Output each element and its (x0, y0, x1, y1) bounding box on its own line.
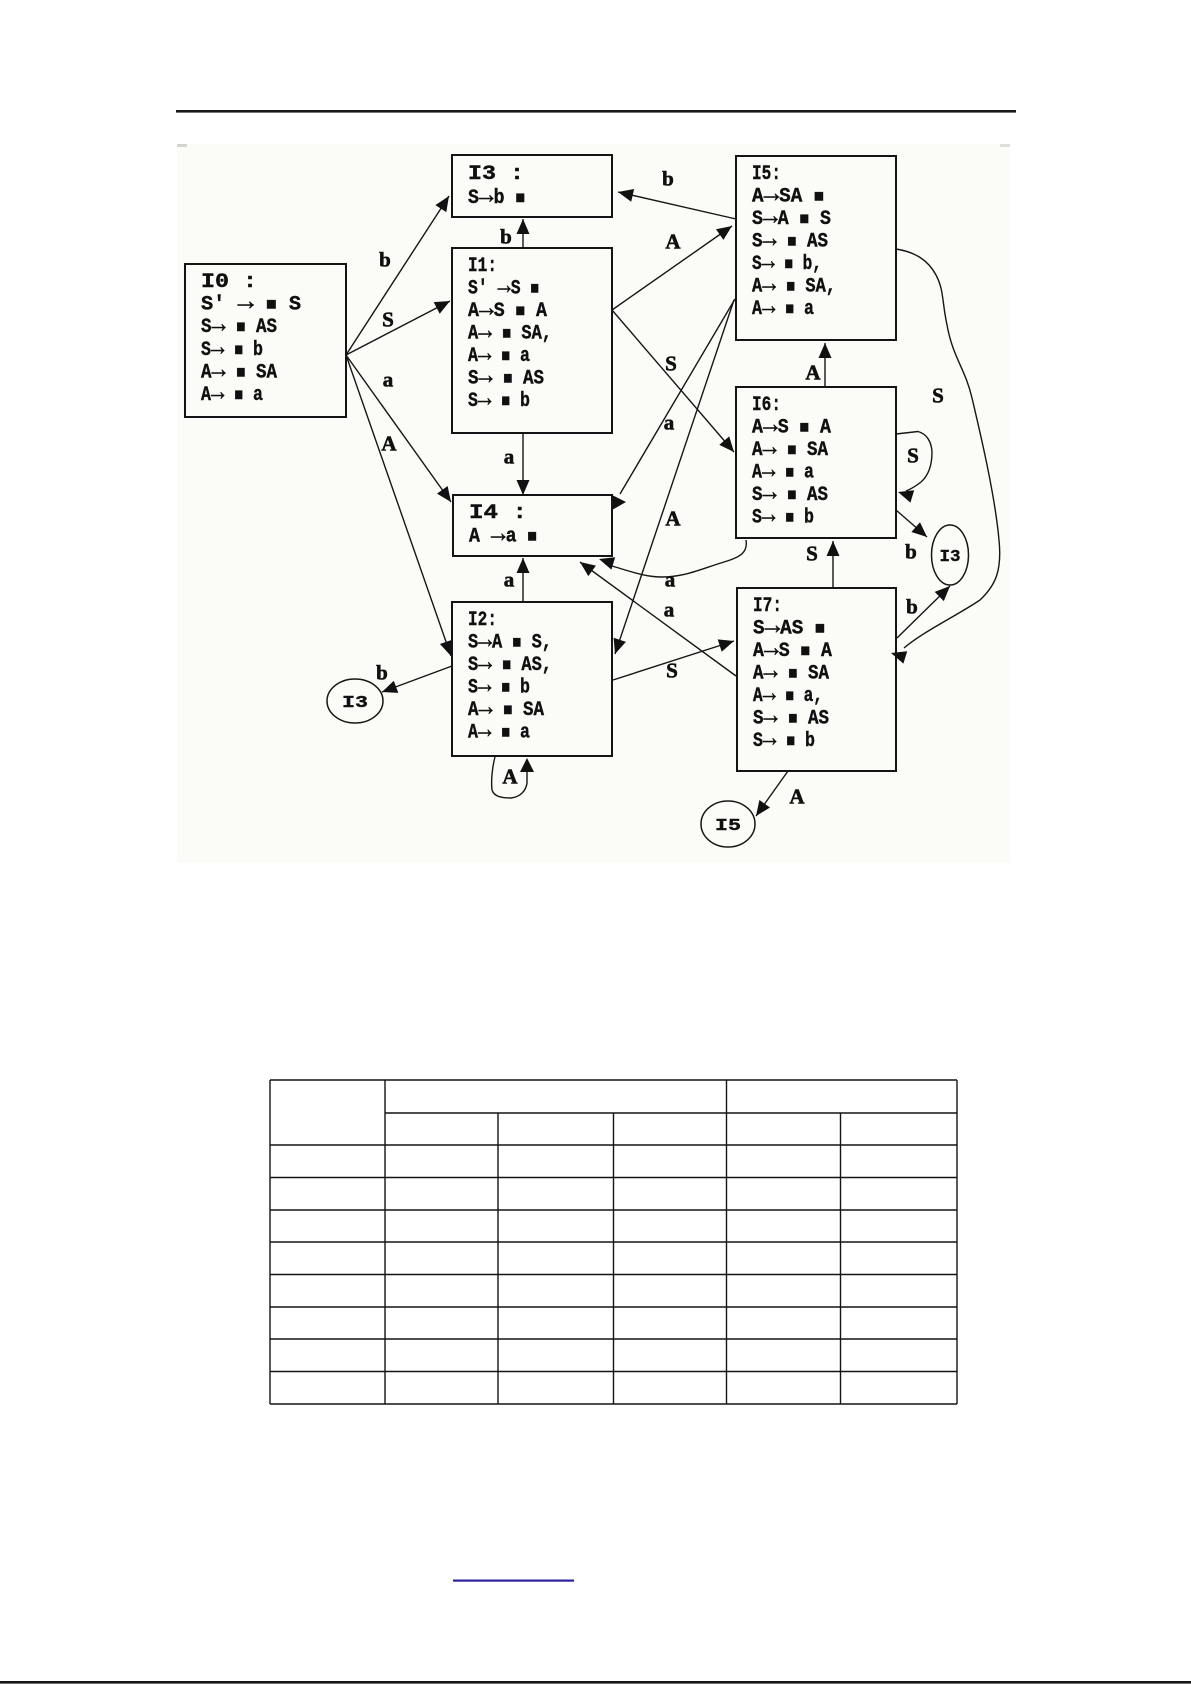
svg-text:A→ ■ a: A→ ■ a (201, 379, 263, 409)
svg-text:b: b (906, 595, 918, 619)
svg-text:a: a (504, 445, 515, 469)
svg-text:I3: I3 (940, 548, 961, 567)
svg-text:A→ ■ a: A→ ■ a (468, 340, 530, 370)
svg-text:I1:: I1: (468, 255, 497, 278)
svg-text:S→ ■ b: S→ ■ b (753, 725, 815, 755)
svg-text:S→ ■ b: S→ ■ b (752, 502, 814, 532)
svg-text:b: b (376, 661, 388, 685)
svg-text:I5: I5 (715, 817, 741, 836)
svg-text:S: S (932, 384, 944, 408)
svg-text:a: a (504, 568, 515, 592)
svg-text:S: S (666, 659, 678, 683)
svg-text:b: b (379, 248, 391, 272)
svg-text:S: S (907, 444, 919, 468)
svg-text:S: S (382, 308, 394, 332)
svg-text:a: a (664, 598, 675, 622)
svg-text:S→ ■ b: S→ ■ b (201, 334, 263, 364)
svg-text:a: a (665, 568, 676, 592)
svg-text:A→ ■ a: A→ ■ a (752, 293, 814, 323)
svg-text:S→ ■ b: S→ ■ b (468, 385, 530, 415)
svg-text:b: b (905, 540, 917, 564)
svg-text:I3: I3 (342, 694, 368, 713)
svg-text:b: b (662, 167, 674, 191)
svg-text:I3 :: I3 : (468, 163, 524, 186)
svg-text:a: a (383, 368, 394, 392)
svg-text:A: A (805, 361, 821, 385)
svg-text:S: S (665, 352, 677, 376)
svg-text:S: S (806, 542, 818, 566)
svg-text:S→ ■ b: S→ ■ b (468, 672, 530, 702)
svg-text:A: A (789, 785, 805, 809)
svg-text:A: A (502, 765, 518, 789)
svg-text:A→ ■ a: A→ ■ a (468, 717, 530, 747)
svg-text:A: A (665, 230, 681, 254)
svg-text:A: A (381, 432, 397, 456)
svg-text:A: A (665, 507, 681, 531)
svg-text:A →a ■: A →a ■ (469, 521, 537, 551)
svg-text:a: a (664, 411, 675, 435)
svg-text:b: b (500, 225, 512, 249)
svg-text:A→ ■ a: A→ ■ a (752, 457, 814, 487)
